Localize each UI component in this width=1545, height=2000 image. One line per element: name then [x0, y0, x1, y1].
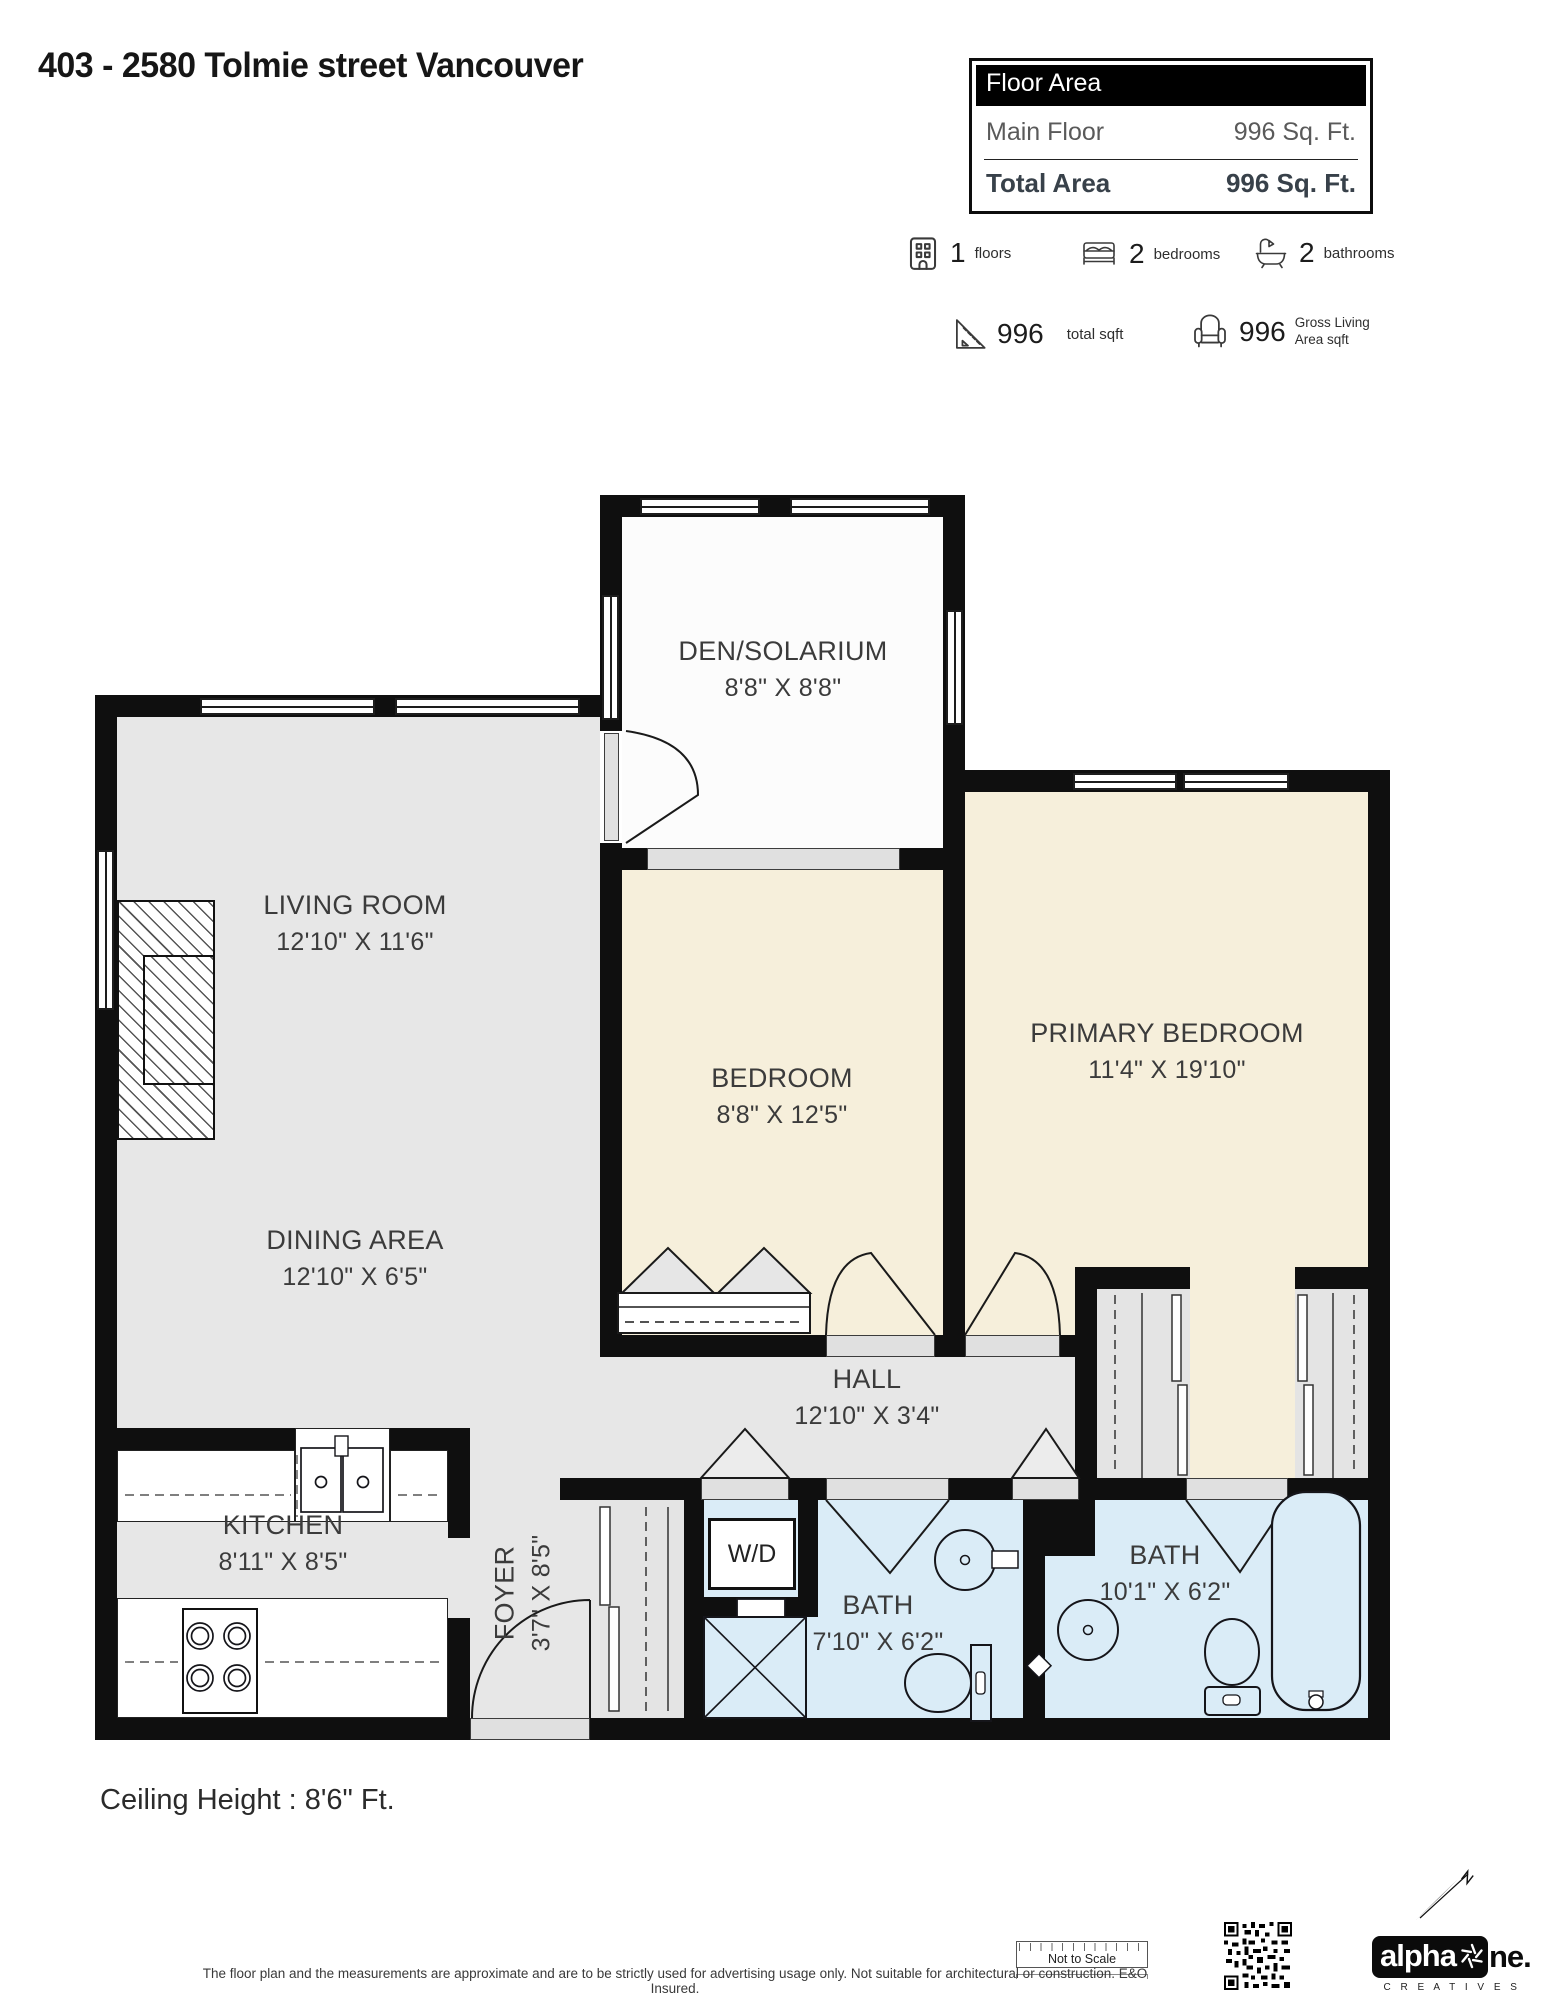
stat-label: Gross Living Area sqft: [1295, 315, 1387, 349]
label-bedroom: BEDROOM 8'8" X 12'5": [711, 1060, 853, 1133]
den-door-swing: [626, 731, 698, 843]
shower: [704, 1617, 806, 1718]
room-name: DEN/SOLARIUM: [678, 633, 887, 671]
label-foyer: FOYER 3'7" X 8'5": [487, 1535, 560, 1652]
floor-area-header: Floor Area: [976, 65, 1366, 106]
stat-total-sqft: 996 total sqft: [948, 314, 1123, 354]
logo-row: alpha ne.: [1372, 1936, 1532, 1978]
stat-gross-living: 996 Gross Living Area sqft: [1190, 312, 1387, 352]
bedroom-door-swing: [826, 1253, 935, 1335]
room-dims: 12'10" X 3'4": [794, 1399, 939, 1434]
room-name: BATH: [1100, 1537, 1231, 1575]
room-name: BATH: [813, 1587, 944, 1625]
building-icon: [905, 234, 941, 272]
bath2-toilet: [1205, 1619, 1259, 1685]
bed-icon: [1078, 238, 1120, 270]
set-square-icon: [948, 314, 988, 354]
stat-floors: 1 floors: [905, 234, 1011, 272]
floor-area-table: Floor Area Main Floor 996 Sq. Ft. Total …: [969, 58, 1373, 214]
room-dims: 3'7" X 8'5": [524, 1535, 559, 1652]
hall-door-peak: [1012, 1429, 1079, 1478]
stat-value: 996: [997, 318, 1044, 350]
disclaimer-text: The floor plan and the measurements are …: [180, 1966, 1170, 1996]
primary-door-swing: [965, 1253, 1060, 1335]
room-dims: 12'10" X 6'5": [266, 1260, 443, 1295]
logo-subtitle: C R E A T I V E S: [1372, 1982, 1532, 1993]
room-dims: 10'1" X 6'2": [1100, 1575, 1231, 1610]
logo-alpha: alpha: [1380, 1937, 1456, 1975]
armchair-icon: [1190, 312, 1230, 352]
ceiling-height-note: Ceiling Height : 8'6" Ft.: [100, 1784, 395, 1817]
logo-ne: ne.: [1489, 1939, 1531, 1975]
aperture-icon: [1457, 1941, 1487, 1971]
wd-door-peak: [701, 1429, 789, 1478]
label-primary-bedroom: PRIMARY BEDROOM 11'4" X 19'10": [1030, 1015, 1304, 1088]
scale-note: Not to Scale: [1048, 1952, 1116, 1966]
bathtub-icon: [1252, 236, 1290, 270]
bath1-toilet: [905, 1654, 971, 1712]
total-area-value: 996 Sq. Ft.: [1226, 168, 1356, 199]
room-name: BEDROOM: [711, 1060, 853, 1098]
scale-ruler: Not to Scale: [1016, 1941, 1148, 1968]
label-kitchen: KITCHEN 8'11" X 8'5": [218, 1507, 347, 1580]
room-dims: 8'11" X 8'5": [218, 1545, 347, 1580]
stat-bedrooms: 2 bedrooms: [1078, 238, 1220, 270]
room-name: DINING AREA: [266, 1222, 443, 1260]
room-dims: 8'8" X 12'5": [711, 1098, 853, 1133]
stat-value: 996: [1239, 316, 1286, 348]
room-dims: 8'8" X 8'8": [678, 671, 887, 706]
stat-label: floors: [975, 245, 1012, 262]
room-name: LIVING ROOM: [263, 887, 446, 925]
room-dims: 12'10" X 11'6": [263, 925, 446, 960]
label-bath-2: BATH 10'1" X 6'2": [1100, 1537, 1231, 1610]
stat-label: bathrooms: [1324, 245, 1395, 262]
stove-burners: [187, 1623, 250, 1691]
main-floor-value: 996 Sq. Ft.: [1234, 118, 1356, 147]
page-title: 403 - 2580 Tolmie street Vancouver: [38, 46, 583, 86]
kitchen-sink: [301, 1436, 383, 1512]
room-dims: 7'10" X 6'2": [813, 1625, 944, 1660]
bath1-sink-tap: [992, 1551, 1018, 1568]
north-arrow-icon: [1408, 1866, 1480, 1928]
room-name: FOYER: [487, 1535, 525, 1652]
total-area-label: Total Area: [986, 168, 1110, 199]
stat-label: total sqft: [1067, 326, 1124, 343]
logo-box: alpha: [1372, 1936, 1488, 1978]
room-name: PRIMARY BEDROOM: [1030, 1015, 1304, 1053]
stat-bathrooms: 2 bathrooms: [1252, 236, 1394, 270]
stat-label: bedrooms: [1154, 246, 1221, 263]
room-dims: 11'4" X 19'10": [1030, 1053, 1304, 1088]
floor-plan: W/D: [95, 495, 1390, 1740]
qr-code: [1224, 1922, 1292, 1990]
stat-value: 1: [950, 237, 966, 269]
stat-value: 2: [1129, 238, 1145, 270]
bath1-door-peak: [826, 1500, 949, 1573]
stat-value: 2: [1299, 237, 1315, 269]
floor-area-total-row: Total Area 996 Sq. Ft.: [972, 160, 1370, 211]
label-hall: HALL 12'10" X 3'4": [794, 1361, 939, 1434]
label-den-solarium: DEN/SOLARIUM 8'8" X 8'8": [678, 633, 887, 706]
tub-faucet: [1309, 1695, 1323, 1709]
room-name: KITCHEN: [218, 1507, 347, 1545]
bathtub: [1272, 1492, 1360, 1710]
main-floor-label: Main Floor: [986, 118, 1104, 147]
label-dining-area: DINING AREA 12'10" X 6'5": [266, 1222, 443, 1295]
bath2-sink-tap: [1027, 1654, 1051, 1678]
label-living-room: LIVING ROOM 12'10" X 11'6": [263, 887, 446, 960]
label-bath-1: BATH 7'10" X 6'2": [813, 1587, 944, 1660]
room-name: HALL: [794, 1361, 939, 1399]
floor-area-main-row: Main Floor 996 Sq. Ft.: [972, 106, 1370, 151]
alphaone-logo: alpha ne. C R E A T I V E S: [1372, 1936, 1532, 1993]
bedroom-closet: [618, 1248, 810, 1333]
